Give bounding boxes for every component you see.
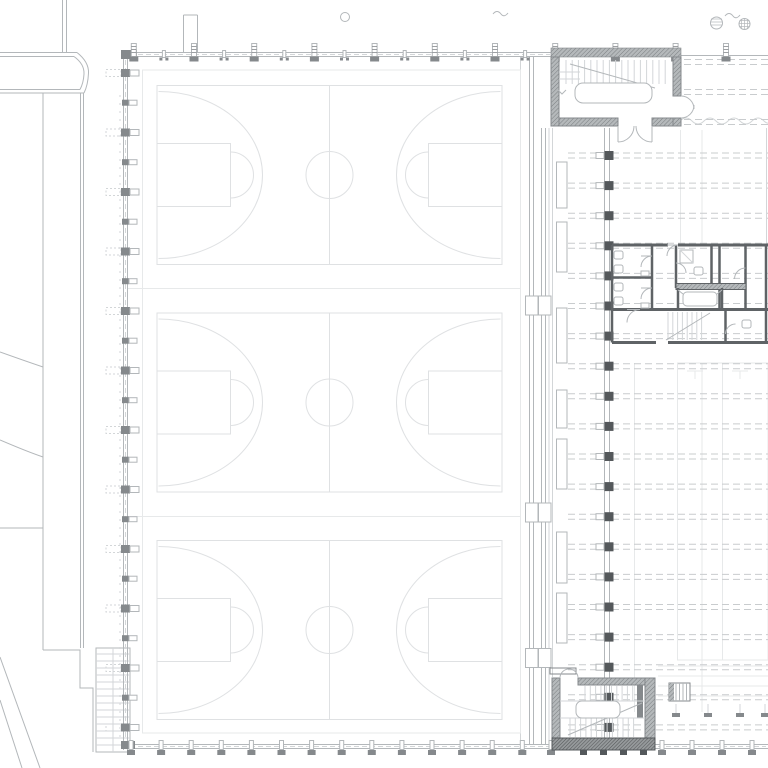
col-marker-glyph [596,572,614,581]
bottom-post-glyph [518,741,526,756]
left-big-glyph [106,724,139,732]
col-marker-glyph [596,663,614,672]
vest-glyph [526,296,552,315]
col-marker-glyph [596,392,614,401]
floor-plan-canvas [0,0,768,768]
col-marker-glyph [596,181,614,190]
col-marker-glyph [596,482,614,491]
left-big-glyph [106,486,139,494]
col-marker-glyph [596,362,614,371]
left-big-glyph [106,188,139,196]
left-big-glyph [106,129,139,137]
left-big-glyph [106,605,139,613]
bottom-post-glyph [718,741,726,756]
bottom-post-glyph [157,741,165,756]
bleacher-foot-glyph [704,704,712,717]
bottom-post-glyph [488,741,496,756]
bottom-post-glyph [308,741,316,756]
bleacher-foot-glyph [761,704,768,717]
left-big-glyph [106,307,139,315]
col-marker-glyph [596,422,614,431]
stair-core-south [552,669,690,755]
wc-glyph [614,265,623,273]
wc-glyph [742,320,751,328]
col-marker-glyph [596,723,614,732]
left-big-glyph [106,426,139,434]
col-marker-glyph [596,693,614,702]
bottom-post-glyph [428,741,436,756]
top-post-glyph [722,44,731,62]
bottom-post-glyph [748,741,756,756]
col-marker-glyph [596,512,614,521]
bottom-post-glyph [217,741,225,756]
col-marker-glyph [596,603,614,612]
left-small-glyph [122,457,137,463]
bottom-post-glyph [278,741,286,756]
left-big-glyph [106,545,139,553]
bottom-post-glyph [458,741,466,756]
bottom-post-glyph [187,741,195,756]
court-glyph [157,86,502,265]
left-big-glyph [106,69,139,77]
floor-plan-drawing [0,0,768,768]
left-big-glyph [106,248,139,256]
col-marker-glyph [596,452,614,461]
col-marker-glyph [596,542,614,551]
bottom-post-glyph [368,741,376,756]
bleacher-foot-glyph [672,704,680,717]
bottom-post-glyph [688,741,696,756]
left-small-glyph [122,100,137,106]
faint-far-area [635,118,768,717]
left-small-glyph [122,159,137,165]
site-west [0,0,198,768]
left-small-glyph [122,635,137,641]
wc-glyph [614,251,623,259]
vest-glyph [526,649,552,668]
left-small-glyph [122,278,137,284]
stair-core-north [551,48,694,142]
left-small-glyph [122,576,137,582]
bottom-post-glyph [338,741,346,756]
left-big-glyph [106,367,139,375]
bottom-post-glyph [247,741,255,756]
col-marker-glyph [596,211,614,220]
bottom-post-glyph [398,741,406,756]
col-marker-glyph [596,633,614,642]
left-small-glyph [122,219,137,225]
left-small-glyph [122,695,137,701]
bleacher-foot-glyph [736,704,744,717]
court-glyph [157,541,502,720]
bottom-post-glyph [658,741,666,756]
court-glyph [157,313,502,492]
wc-glyph [694,267,703,275]
sanitary-room-block [612,245,768,343]
col-marker-glyph [596,151,614,160]
right-wing-walls [521,57,767,744]
left-small-glyph [122,338,137,344]
vest-glyph [526,503,552,522]
beam-short-glyph [684,90,768,95]
basketball-courts [157,86,502,720]
wc-glyph [614,283,623,291]
wc-glyph [614,297,623,305]
site-trees [341,12,751,30]
left-small-glyph [122,397,137,403]
left-small-glyph [122,516,137,522]
